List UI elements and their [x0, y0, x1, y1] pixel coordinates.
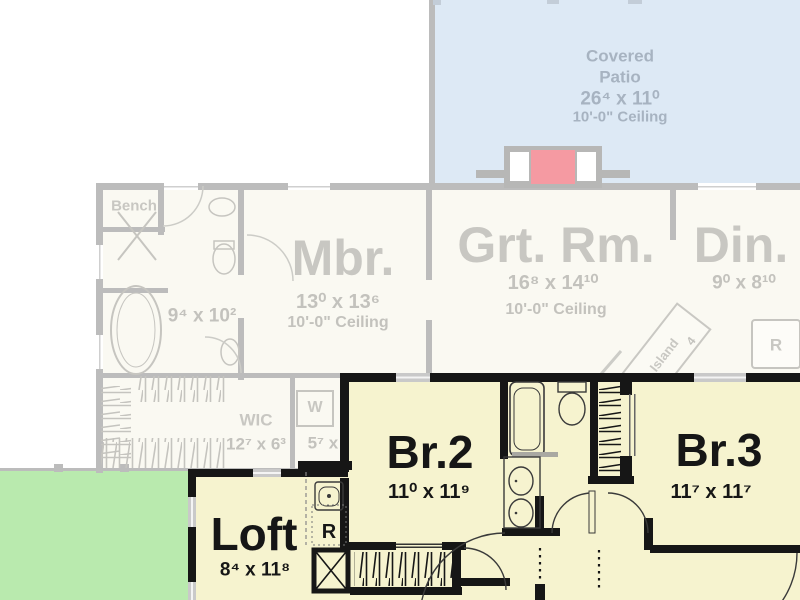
bedroom3-dims: 11⁷ x 11⁷ [670, 482, 751, 502]
bedroom2-label: Br.2 [387, 429, 474, 475]
loft-label: Loft [211, 511, 298, 557]
loft-refrigerator-label: R [322, 522, 336, 542]
loft-dims: 8⁴ x 11⁸ [220, 561, 290, 580]
upper-floor-labels: Br.2 11⁰ x 11⁹ Br.3 11⁷ x 11⁷ Loft 8⁴ x … [0, 0, 800, 600]
floor-plan-image: Covered Patio 26⁴ x 11⁰ 10'-0" Ceiling B… [0, 0, 800, 600]
bedroom3-label: Br.3 [676, 427, 763, 473]
bedroom2-dims: 11⁰ x 11⁹ [388, 482, 470, 502]
